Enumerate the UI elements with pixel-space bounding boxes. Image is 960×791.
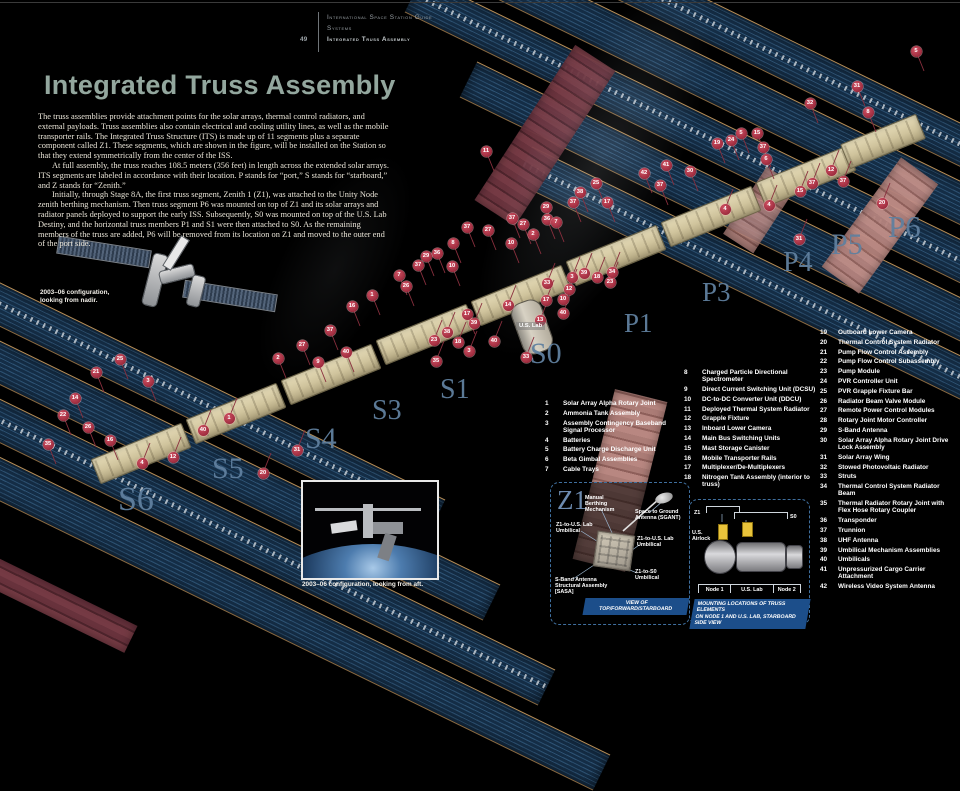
callout-badge-12: 12 [168, 452, 179, 463]
callout-badge-22: 22 [58, 410, 69, 421]
legend-item-8: 8Charged Particle Directional Spectromet… [684, 369, 826, 383]
callout-badge-8: 8 [863, 107, 874, 118]
callout-badge-23: 23 [429, 335, 440, 346]
legend-item-34: 34Thermal Control System Radiator Beam [820, 483, 958, 497]
z1-panel-footer: VIEW OF TOP/FORWARD/STARBOARD [583, 598, 690, 615]
caption-nadir: 2003–06 configuration, looking from nadi… [40, 289, 122, 305]
legend-item-16: 16Mobile Transporter Rails [684, 455, 826, 462]
callout-badge-10: 10 [506, 238, 517, 249]
callout-badge-31: 31 [794, 234, 805, 245]
callout-badge-41: 41 [661, 160, 672, 171]
legend-item-12: 12Grapple Fixture [684, 415, 826, 422]
callout-badge-12: 12 [826, 165, 837, 176]
node-z1-label: Z1 [694, 510, 700, 516]
callout-badge-37: 37 [507, 213, 518, 224]
callout-badge-10: 10 [447, 261, 458, 272]
legend-item-31: 31Solar Array Wing [820, 454, 958, 461]
callout-badge-27: 27 [518, 219, 529, 230]
legend-item-2: 2Ammonia Tank Assembly [545, 410, 680, 417]
callout-badge-12: 12 [564, 284, 575, 295]
callout-badge-3: 3 [143, 376, 154, 387]
node-s0-label: S0 [790, 514, 797, 520]
callout-badge-38: 38 [575, 187, 586, 198]
callout-badge-15: 15 [752, 128, 763, 139]
callout-badge-33: 33 [521, 352, 532, 363]
callout-badge-20: 20 [877, 198, 888, 209]
callout-badge-4: 4 [720, 204, 731, 215]
legend-item-29: 29S-Band Antenna [820, 427, 958, 434]
callout-badge-6: 6 [761, 154, 772, 165]
callout-badge-23: 23 [605, 277, 616, 288]
z1-module-drawing [593, 531, 636, 572]
callout-umb-s0: Z1-to-S0 Umbilical [635, 569, 675, 581]
callout-badge-39: 39 [469, 318, 480, 329]
legend-item-23: 23Pump Module [820, 368, 958, 375]
legend-item-10: 10DC-to-DC Converter Unit (DDCU) [684, 396, 826, 403]
callout-badge-17: 17 [602, 197, 613, 208]
callout-badge-37: 37 [655, 180, 666, 191]
z1-detail-panel: Z1 Manual Berthing Mechanism Space to Gr… [550, 482, 690, 625]
callout-badge-26: 26 [401, 281, 412, 292]
callout-badge-36: 36 [432, 248, 443, 259]
node1-drawing [704, 540, 736, 574]
legend-item-13: 13Inboard Lower Camera [684, 425, 826, 432]
aft-photo [301, 480, 439, 580]
node-labels-strip: Node 1 U.S. Lab Node 2 [698, 584, 801, 593]
caption-aft: 2003–06 configuration, looking from aft. [302, 581, 442, 589]
node1-label: Node 1 [698, 585, 731, 593]
legend-item-4: 4Batteries [545, 437, 680, 444]
legend-item-22: 22Pump Flow Control Subassembly [820, 358, 958, 365]
callout-badge-35: 35 [431, 356, 442, 367]
legend-item-14: 14Main Bus Switching Units [684, 435, 826, 442]
truss-diagram: 5318322037371543112155241937630414237411… [0, 0, 960, 630]
legend-item-9: 9Direct Current Switching Unit (DCSU) [684, 386, 826, 393]
callout-badge-5: 5 [736, 128, 747, 139]
callout-badge-4: 4 [764, 200, 775, 211]
callout-badge-39: 39 [579, 268, 590, 279]
legend-item-40: 40Umbilicals [820, 556, 958, 563]
callout-badge-16: 16 [347, 301, 358, 312]
callout-badge-37: 37 [568, 197, 579, 208]
legend-item-1: 1Solar Array Alpha Rotary Joint [545, 400, 680, 407]
iss-panel-silhouette [330, 520, 357, 534]
legend-item-19: 19Outboard Lower Camera [820, 329, 958, 336]
legend-item-33: 33Struts [820, 473, 958, 480]
legend-item-24: 24PVR Controller Unit [820, 378, 958, 385]
legend-item-38: 38UHF Antenna [820, 537, 958, 544]
legend-column-1: 1Solar Array Alpha Rotary Joint2Ammonia … [545, 400, 680, 473]
legend-item-18: 18Nitrogen Tank Assembly (interior to tr… [684, 474, 826, 488]
legend-item-3: 3Assembly Contingency Baseband Signal Pr… [545, 420, 680, 434]
callout-badge-1: 1 [367, 290, 378, 301]
callout-sgant: Space to Ground Antenna (SGANT) [635, 509, 685, 521]
callout-badge-27: 27 [297, 340, 308, 351]
legend-item-42: 42Wireless Video System Antenna [820, 583, 958, 590]
callout-badge-1: 1 [224, 413, 235, 424]
callout-badge-9: 9 [313, 357, 324, 368]
s0-bracket [734, 512, 788, 519]
callout-badge-7: 7 [394, 270, 405, 281]
callout-badge-18: 18 [592, 272, 603, 283]
legend-item-20: 20Thermal Control System Radiator [820, 339, 958, 346]
callout-badge-29: 29 [541, 202, 552, 213]
callout-badge-24: 24 [726, 135, 737, 146]
callout-badge-37: 37 [325, 325, 336, 336]
us-lab-drawing [736, 542, 786, 572]
legend-item-5: 5Battery Charge Discharge Unit [545, 446, 680, 453]
callout-badge-2: 2 [528, 229, 539, 240]
legend-item-6: 6Beta Gimbal Assemblies [545, 456, 680, 463]
z1-panel-title: Z1 [557, 485, 587, 516]
legend-item-21: 21Pump Flow Control Assembly [820, 349, 958, 356]
legend-item-32: 32Stowed Photovoltaic Radiator [820, 464, 958, 471]
callout-badge-37: 37 [758, 142, 769, 153]
legend-item-35: 35Thermal Radiator Rotary Joint with Fle… [820, 500, 958, 514]
legend-item-36: 36Transponder [820, 517, 958, 524]
callout-badge-8: 8 [448, 238, 459, 249]
callout-badge-32: 32 [805, 98, 816, 109]
s0-mount-highlight [742, 522, 753, 537]
callout-badge-10: 10 [558, 294, 569, 305]
callout-badge-37: 37 [807, 178, 818, 189]
leader-lines [0, 0, 960, 630]
callout-badge-3: 3 [464, 346, 475, 357]
us-lab-tag: U.S. Lab [516, 322, 545, 330]
callout-badge-37: 37 [462, 222, 473, 233]
callout-mbm: Manual Berthing Mechanism [585, 495, 623, 514]
legend-item-17: 17Multiplexer/De-Multiplexers [684, 464, 826, 471]
callout-badge-33: 33 [542, 278, 553, 289]
callout-badge-2: 2 [273, 353, 284, 364]
callout-badge-5: 5 [911, 46, 922, 57]
callout-badge-27: 27 [483, 225, 494, 236]
page: { "header":{ "guide":"International Spac… [0, 0, 960, 630]
legend-item-41: 41Unpressurized Cargo Carrier Attachment [820, 566, 958, 580]
node2-drawing [786, 545, 803, 569]
callout-badge-42: 42 [639, 168, 650, 179]
callout-badge-40: 40 [341, 347, 352, 358]
legend-item-15: 15Mast Storage Canister [684, 445, 826, 452]
earth-limb [301, 544, 439, 580]
legend-item-7: 7Cable Trays [545, 466, 680, 473]
uslab-label: U.S. Lab [731, 585, 773, 593]
callout-badge-29: 29 [421, 251, 432, 262]
callout-badge-16: 16 [105, 435, 116, 446]
callout-badge-40: 40 [198, 425, 209, 436]
legend-item-30: 30Solar Array Alpha Rotary Joint Drive L… [820, 437, 958, 451]
z1-mount-highlight [718, 524, 728, 540]
node-footer-line1: MOUNTING LOCATIONS OF TRUSS ELEMENTS [696, 601, 806, 614]
callout-badge-25: 25 [591, 178, 602, 189]
legend-column-3: 19Outboard Lower Camera20Thermal Control… [820, 329, 958, 590]
callout-badge-17: 17 [541, 295, 552, 306]
callout-badge-14: 14 [503, 300, 514, 311]
callout-badge-30: 30 [685, 166, 696, 177]
callout-badge-26: 26 [83, 422, 94, 433]
callout-sasa: S-Band Antenna Structural Assembly [SASA… [555, 577, 611, 596]
legend-item-39: 39Umbilical Mechanism Assemblies [820, 547, 958, 554]
callout-badge-40: 40 [489, 336, 500, 347]
callout-umb-left: Z1-to-U.S. Lab Umbilical [556, 522, 598, 534]
node-panel-footer: MOUNTING LOCATIONS OF TRUSS ELEMENTS ON … [689, 599, 810, 629]
legend-item-37: 37Trunnion [820, 527, 958, 534]
callout-badge-3: 3 [567, 272, 578, 283]
callout-badge-31: 31 [852, 81, 863, 92]
legend-column-2: 8Charged Particle Directional Spectromet… [684, 369, 826, 489]
callout-badge-31: 31 [292, 445, 303, 456]
legend-item-28: 28Rotary Joint Motor Controller [820, 417, 958, 424]
legend-item-26: 26Radiator Beam Valve Module [820, 398, 958, 405]
callout-badge-38: 38 [442, 327, 453, 338]
callout-badge-21: 21 [91, 367, 102, 378]
callout-badge-37: 37 [413, 260, 424, 271]
callout-badge-40: 40 [558, 308, 569, 319]
callout-umb-right: Z1-to-U.S. Lab Umbilical [637, 536, 683, 548]
legend-item-11: 11Deployed Thermal System Radiator [684, 406, 826, 413]
callout-badge-14: 14 [70, 393, 81, 404]
callout-badge-4: 4 [137, 458, 148, 469]
callout-badge-20: 20 [258, 468, 269, 479]
legend-item-27: 27Remote Power Control Modules [820, 407, 958, 414]
callout-badge-15: 15 [795, 186, 806, 197]
callout-badge-18: 18 [453, 337, 464, 348]
callout-airlock: U.S. Airlock [692, 530, 714, 542]
legend-item-25: 25PVR Grapple Fixture Bar [820, 388, 958, 395]
node2-label: Node 2 [774, 585, 801, 593]
callout-badge-19: 19 [712, 138, 723, 149]
callout-badge-34: 34 [607, 267, 618, 278]
iss-module-silhouette [363, 504, 373, 538]
callout-badge-35: 35 [43, 439, 54, 450]
node-footer-line2: ON NODE 1 AND U.S. LAB, STARBOARD SIDE V… [694, 614, 804, 627]
callout-badge-11: 11 [481, 146, 492, 157]
callout-badge-25: 25 [115, 354, 126, 365]
node-mounting-panel: Z1 S0 U.S. Airlock Node 1 U.S. Lab Node … [689, 499, 810, 625]
callout-badge-37: 37 [838, 176, 849, 187]
iss-module-silhouette [373, 522, 403, 534]
callout-badge-7: 7 [551, 217, 562, 228]
